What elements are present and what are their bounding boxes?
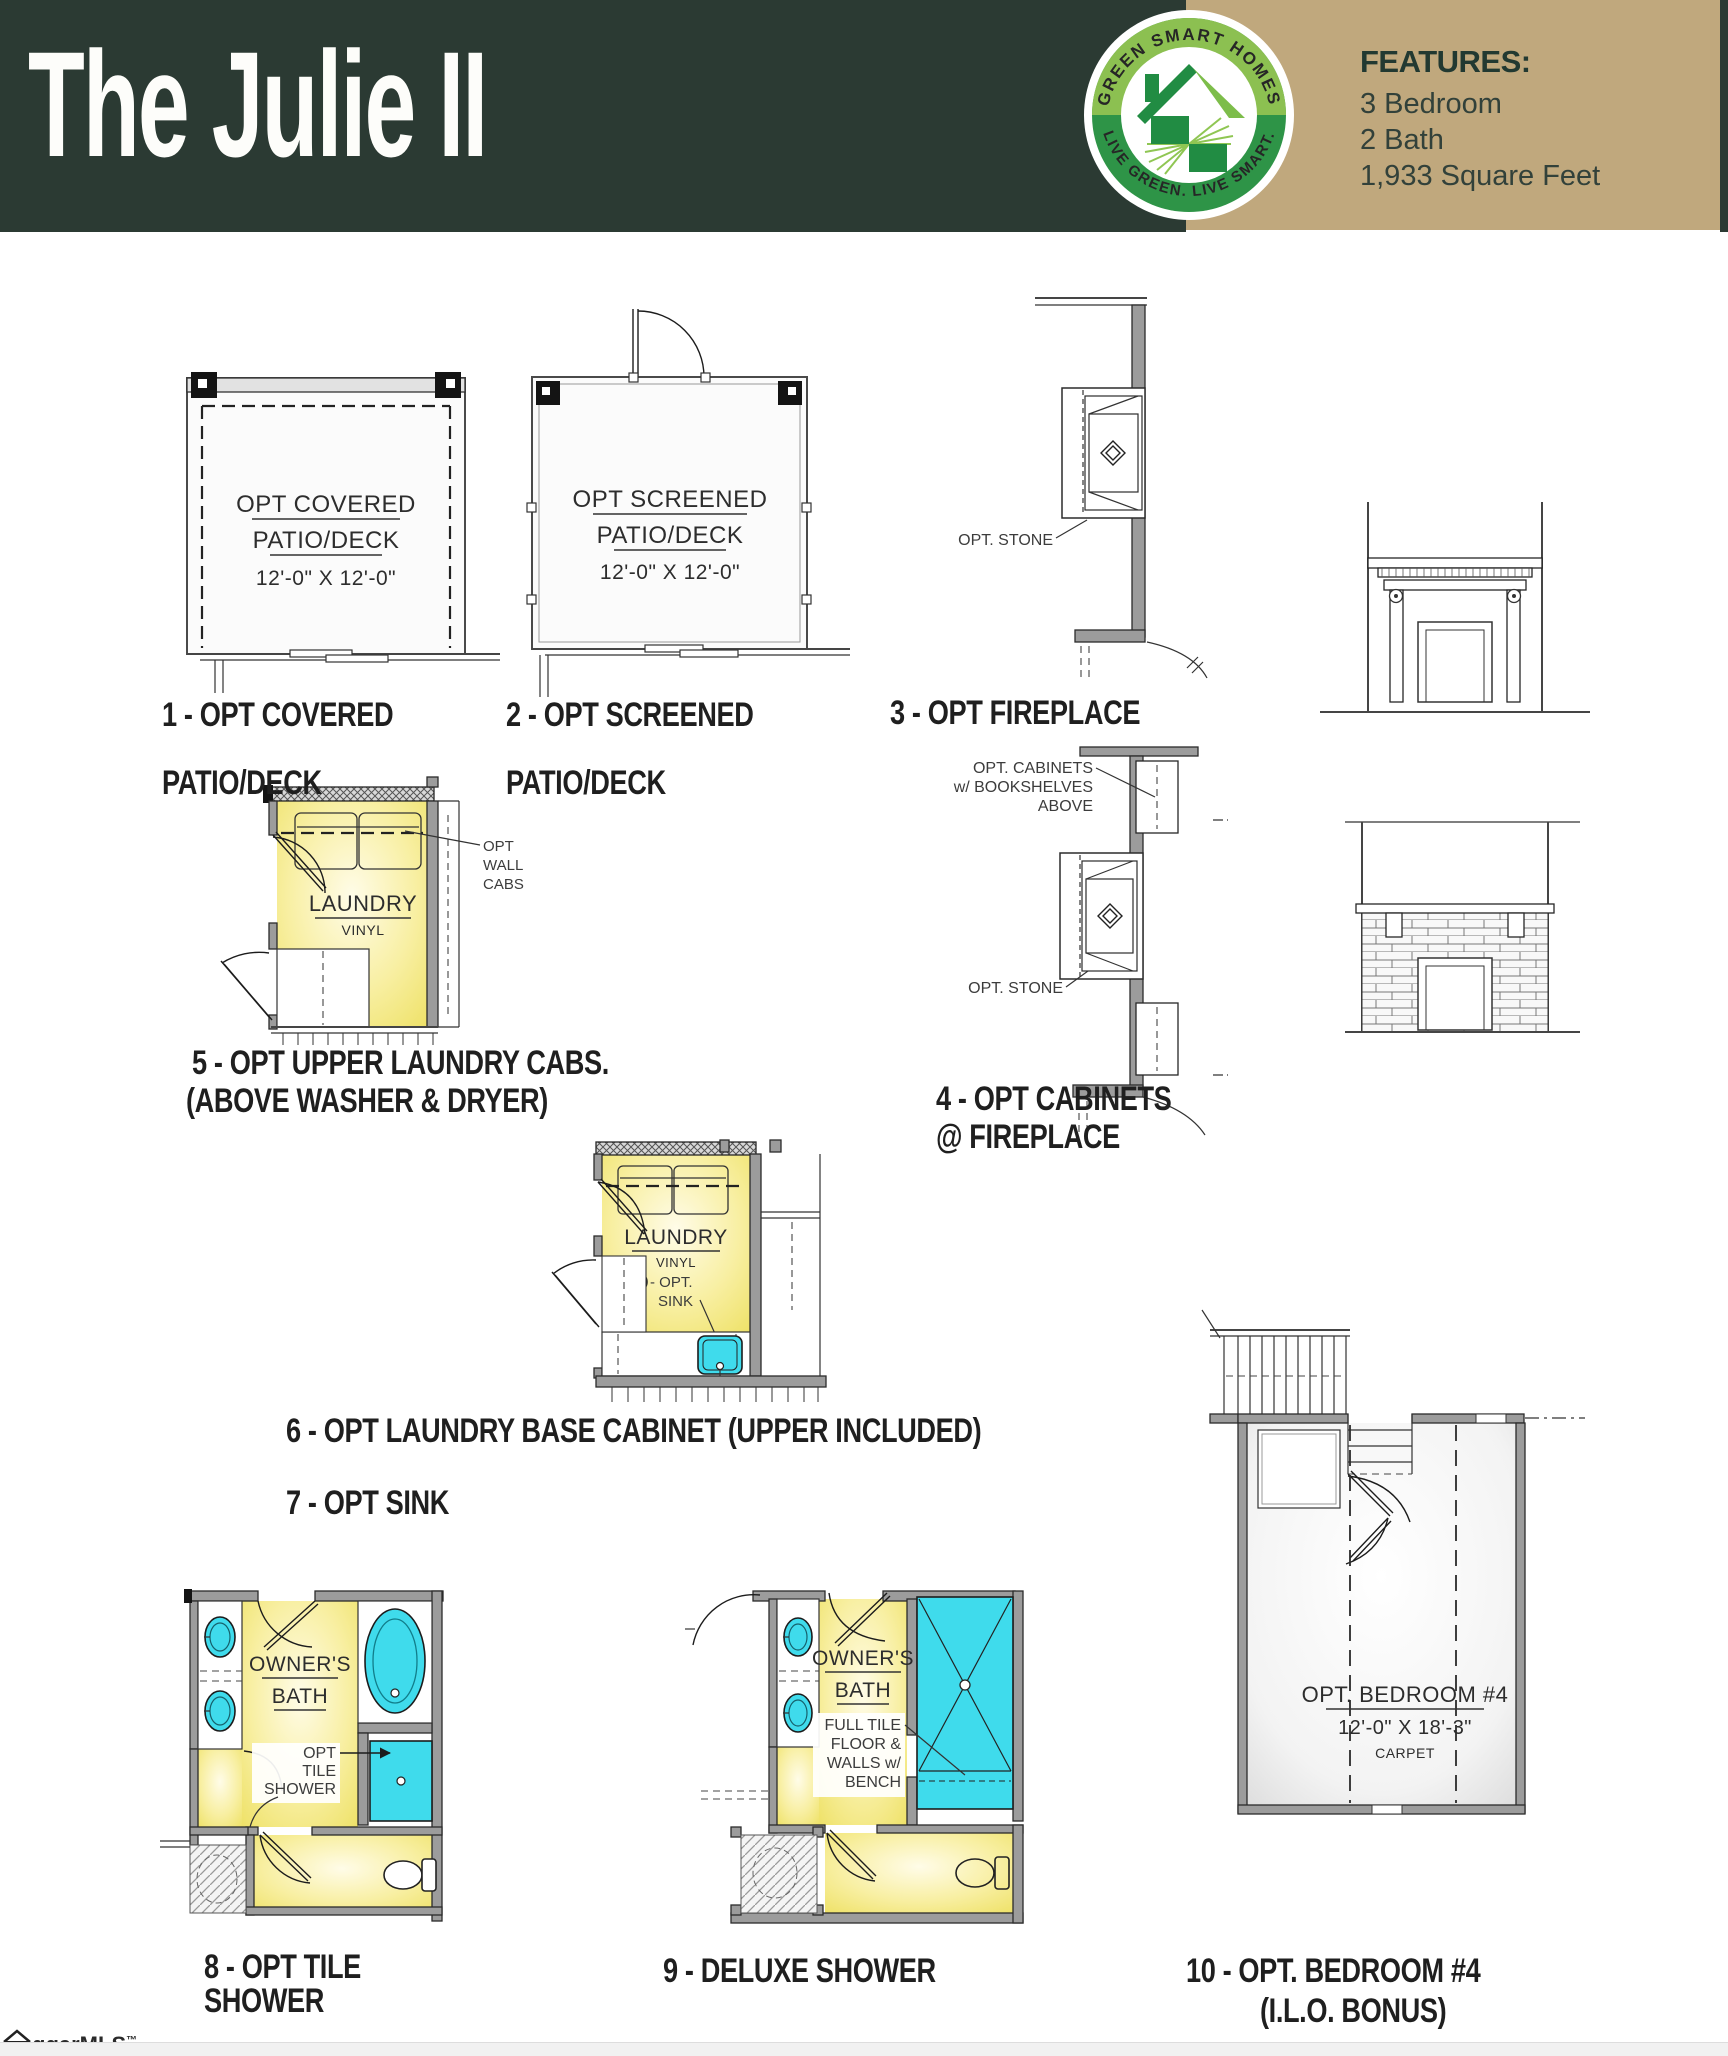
svg-text:OPT: OPT — [303, 1745, 336, 1762]
vanity — [198, 1601, 242, 1749]
d10-floor-label: CARPET — [1375, 1745, 1435, 1761]
features-heading: FEATURES: — [1360, 44, 1600, 80]
page-title: The Julie II — [28, 18, 486, 191]
feature-bedrooms: 3 Bedroom — [1360, 86, 1600, 122]
caption-10-line1: 10 - OPT. BEDROOM #4 — [1186, 1952, 1480, 1991]
d10-dims: 12'-0" X 18'-3" — [1338, 1717, 1472, 1739]
closet — [1258, 1430, 1340, 1508]
svg-text:WALLS w/: WALLS w/ — [827, 1755, 902, 1772]
diagram-opt-covered-patio: OPT COVERED PATIO/DECK 12'-0" X 12'-0" — [140, 360, 500, 695]
svg-text:BENCH: BENCH — [845, 1774, 901, 1791]
flyer-page: The Julie II FEATURES: 3 Bedroom 2 Bath … — [0, 0, 1728, 2056]
svg-text:OPT: OPT — [483, 838, 514, 855]
d9-room-line2: BATH — [835, 1679, 891, 1702]
svg-text:SINK: SINK — [658, 1293, 693, 1310]
d1-dims: 12'-0" X 12'-0" — [256, 567, 396, 590]
d9-room-line1: OWNER'S — [812, 1647, 914, 1670]
diagram-deluxe-shower: OWNER'S BATH FULL TILE FLOOR & WALLS w/ … — [665, 1585, 1035, 1930]
diagram-opt-screened-patio: OPT SCREENED PATIO/DECK 12'-0" X 12'-0" — [505, 295, 850, 700]
svg-text:WALL: WALL — [483, 857, 523, 874]
caption-2-line2: PATIO/DECK — [506, 764, 666, 803]
diagram-opt-tile-shower: OWNER'S BATH OPT TILE SHOWER — [160, 1585, 490, 1930]
caption-9: 9 - DELUXE SHOWER — [663, 1952, 936, 1991]
hatch-area — [741, 1835, 817, 1913]
d4-cabinets-annotation: OPT. CABINETS w/ BOOKSHELVES ABOVE — [953, 760, 1155, 815]
caption-10-line2: (I.L.O. BONUS) — [1260, 1992, 1446, 2031]
d1-label-line2: PATIO/DECK — [253, 527, 400, 554]
sink — [698, 1336, 742, 1376]
caption-5-line1: 5 - OPT UPPER LAUNDRY CABS. — [192, 1044, 609, 1083]
svg-text:CABS: CABS — [483, 876, 524, 893]
d5-floor-label: VINYL — [342, 922, 385, 938]
d8-room-line1: OWNER'S — [249, 1653, 351, 1676]
caption-1-line1: 1 - OPT COVERED — [162, 696, 393, 735]
d1-label-line1: OPT COVERED — [236, 491, 416, 518]
feature-baths: 2 Bath — [1360, 122, 1600, 158]
svg-text:OPT. CABINETS: OPT. CABINETS — [973, 760, 1093, 777]
caption-1-line2: PATIO/DECK — [162, 764, 322, 803]
diagram-fireplace-elevation-stone — [1330, 808, 1595, 1043]
diagram-opt-bedroom4: OPT. BEDROOM #4 12'-0" X 18'-3" CARPET — [1180, 1290, 1590, 1930]
toilet — [384, 1859, 436, 1891]
caption-8-line2: SHOWER — [204, 1982, 324, 2021]
svg-text:OPT. STONE: OPT. STONE — [968, 980, 1063, 997]
header-right-strip — [1720, 0, 1728, 232]
svg-text:- OPT.: - OPT. — [650, 1274, 693, 1291]
d2-label-line1: OPT SCREENED — [573, 486, 768, 513]
svg-text:TILE: TILE — [302, 1763, 336, 1780]
caption-4-line1: 4 - OPT CABINETS — [936, 1080, 1171, 1119]
bottom-strip — [0, 2042, 1728, 2056]
deluxe-shower-pan — [917, 1597, 1013, 1809]
d3-opt-stone-label: OPT. STONE — [958, 532, 1053, 549]
svg-text:w/ BOOKSHELVES: w/ BOOKSHELVES — [953, 779, 1093, 796]
svg-text:ABOVE: ABOVE — [1038, 798, 1093, 815]
features-list: FEATURES: 3 Bedroom 2 Bath 1,933 Square … — [1360, 44, 1600, 194]
d2-label-line2: PATIO/DECK — [597, 522, 744, 549]
d2-dims: 12'-0" X 12'-0" — [600, 561, 740, 584]
diagram-opt-laundry-sink: LAUNDRY VINYL 7 - OPT. SINK — [540, 1140, 885, 1425]
tub — [358, 1601, 432, 1723]
diagram-opt-upper-laundry-cabs: LAUNDRY VINYL OPT WALL CABS — [165, 775, 595, 1065]
green-smart-homes-logo: GREEN SMART HOMES LIVE GREEN. LIVE SMART… — [1082, 8, 1296, 222]
diagram-opt-fireplace-plan: OPT. STONE — [935, 280, 1225, 710]
d10-room-label: OPT. BEDROOM #4 — [1302, 1682, 1509, 1707]
caption-2-line1: 2 - OPT SCREENED — [506, 696, 754, 735]
caption-6: 6 - OPT LAUNDRY BASE CABINET (UPPER INCL… — [286, 1412, 981, 1451]
svg-text:FULL TILE: FULL TILE — [825, 1717, 901, 1734]
caption-5-line2: (ABOVE WASHER & DRYER) — [186, 1082, 548, 1121]
vanity — [777, 1599, 819, 1747]
stairs — [1202, 1310, 1350, 1414]
d8-room-line2: BATH — [272, 1685, 328, 1708]
fireplace-box — [1060, 853, 1143, 979]
caption-3: 3 - OPT FIREPLACE — [890, 694, 1140, 733]
diagram-fireplace-elevation-mantel — [1320, 500, 1590, 730]
svg-text:SHOWER: SHOWER — [264, 1781, 336, 1798]
d5-room-label: LAUNDRY — [309, 891, 417, 916]
d6-floor-label: VINYL — [656, 1255, 696, 1270]
caption-4-line2: @ FIREPLACE — [936, 1118, 1120, 1157]
caption-7: 7 - OPT SINK — [286, 1484, 449, 1523]
hatch-area — [160, 1841, 246, 1913]
svg-text:FLOOR &: FLOOR & — [831, 1736, 902, 1753]
fireplace-box — [1062, 388, 1145, 518]
feature-sqft: 1,933 Square Feet — [1360, 158, 1600, 194]
